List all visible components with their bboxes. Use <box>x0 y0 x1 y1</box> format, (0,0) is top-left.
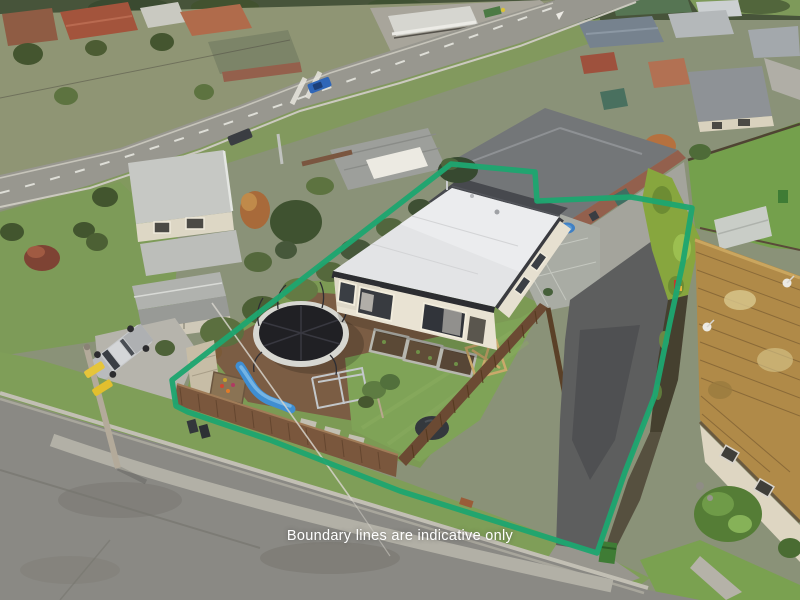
aerial-property-photo: Boundary lines are indicative only <box>0 0 800 600</box>
disclaimer-text: Boundary lines are indicative only <box>0 528 800 544</box>
photo-canvas <box>0 0 800 600</box>
left-house-roof <box>128 150 232 224</box>
